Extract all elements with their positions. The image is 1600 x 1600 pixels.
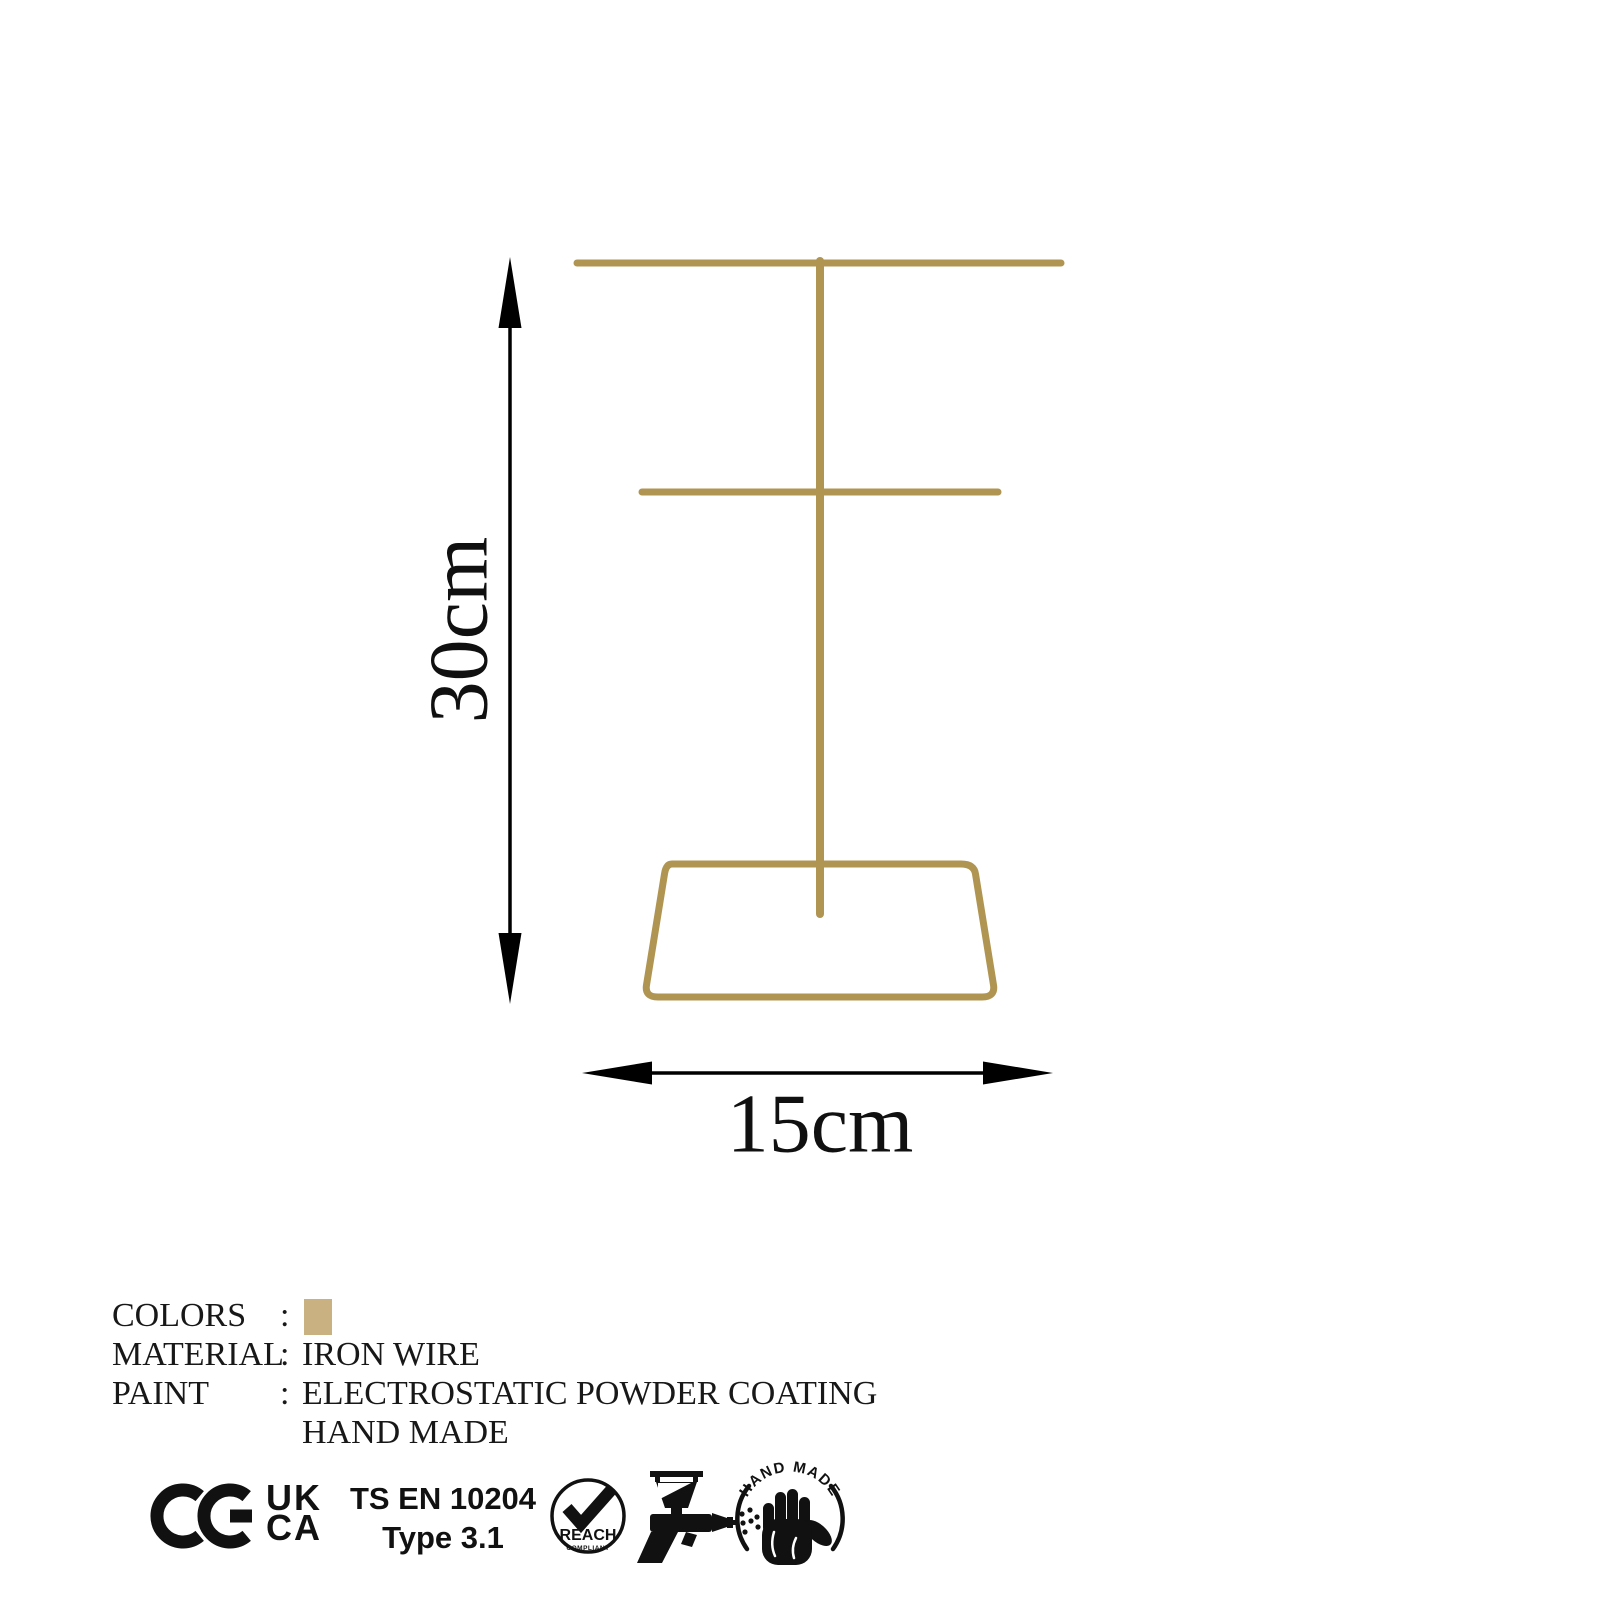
standard-line2: Type 3.1	[342, 1518, 544, 1557]
spec-row-paint: PAINT : ELECTROSTATIC POWDER COATING	[112, 1374, 877, 1413]
arrow-left-icon	[582, 1062, 652, 1085]
spec-value: HAND MADE	[302, 1413, 509, 1452]
handmade-badge: HAND MADE	[736, 1459, 844, 1565]
spec-value: ELECTROSTATIC POWDER COATING	[302, 1374, 877, 1413]
spec-colon: :	[280, 1335, 302, 1374]
height-dimension-label: 30cm	[411, 537, 508, 724]
color-swatch	[304, 1299, 332, 1335]
spec-colon: :	[280, 1296, 302, 1335]
spec-label: COLORS	[112, 1296, 280, 1335]
ukca-line2: CA	[266, 1513, 322, 1543]
reach-sublabel: COMPLIANT	[566, 1545, 609, 1552]
spec-row-material: MATERIAL : IRON WIRE	[112, 1335, 877, 1374]
product-dimension-diagram: REACH COMPLIANT	[0, 0, 1600, 1600]
jewelry-stand-graphic	[577, 261, 1061, 997]
standard-line1: TS EN 10204	[342, 1479, 544, 1518]
spec-label: PAINT	[112, 1374, 280, 1413]
hand-icon	[762, 1489, 836, 1565]
arrow-up-icon	[499, 257, 522, 328]
spec-row-handmade: HAND MADE	[112, 1413, 877, 1452]
reach-compliant-badge: REACH COMPLIANT	[552, 1480, 624, 1552]
arrow-down-icon	[499, 933, 522, 1004]
spec-value: IRON WIRE	[302, 1335, 480, 1374]
spec-table: COLORS : MATERIAL : IRON WIRE PAINT : EL…	[112, 1296, 877, 1452]
spec-colon: :	[280, 1374, 302, 1413]
spec-row-colors: COLORS :	[112, 1296, 877, 1335]
standard-reference: TS EN 10204 Type 3.1	[342, 1479, 544, 1557]
reach-label: REACH	[560, 1527, 617, 1544]
arrow-right-icon	[983, 1062, 1053, 1085]
width-dimension-label: 15cm	[727, 1076, 914, 1173]
ukca-mark: UK CA	[266, 1483, 322, 1543]
ce-mark-icon	[157, 1490, 252, 1542]
spec-label: MATERIAL	[112, 1335, 280, 1374]
